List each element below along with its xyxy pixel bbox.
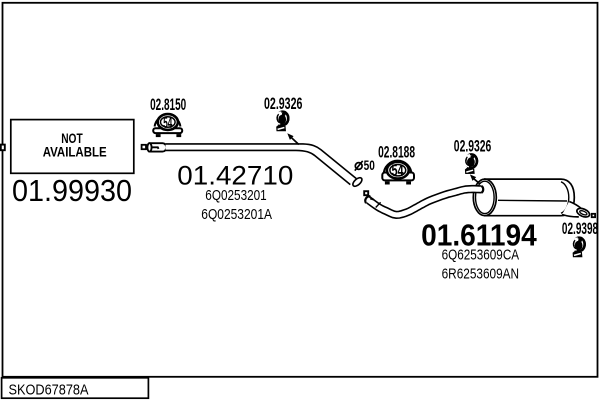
svg-text:01.99930: 01.99930 bbox=[12, 174, 132, 208]
svg-text:54: 54 bbox=[163, 115, 172, 132]
svg-text:AVAILABLE: AVAILABLE bbox=[43, 144, 107, 160]
svg-text:SKOD67878A: SKOD67878A bbox=[9, 382, 89, 399]
svg-text:01.42710: 01.42710 bbox=[177, 160, 293, 190]
svg-text:02.9398: 02.9398 bbox=[562, 219, 598, 238]
svg-text:50: 50 bbox=[364, 157, 375, 173]
svg-text:54: 54 bbox=[392, 162, 404, 180]
svg-text:02.8150: 02.8150 bbox=[150, 95, 186, 114]
svg-text:6Q0253201A: 6Q0253201A bbox=[201, 206, 272, 223]
svg-text:02.8188: 02.8188 bbox=[378, 143, 415, 162]
svg-text:02.9326: 02.9326 bbox=[264, 94, 302, 113]
svg-text:6R6253609AN: 6R6253609AN bbox=[442, 265, 519, 282]
svg-text:02.9326: 02.9326 bbox=[454, 136, 492, 155]
svg-text:6Q0253201: 6Q0253201 bbox=[205, 187, 266, 204]
svg-text:6Q6253609CA: 6Q6253609CA bbox=[442, 246, 519, 263]
